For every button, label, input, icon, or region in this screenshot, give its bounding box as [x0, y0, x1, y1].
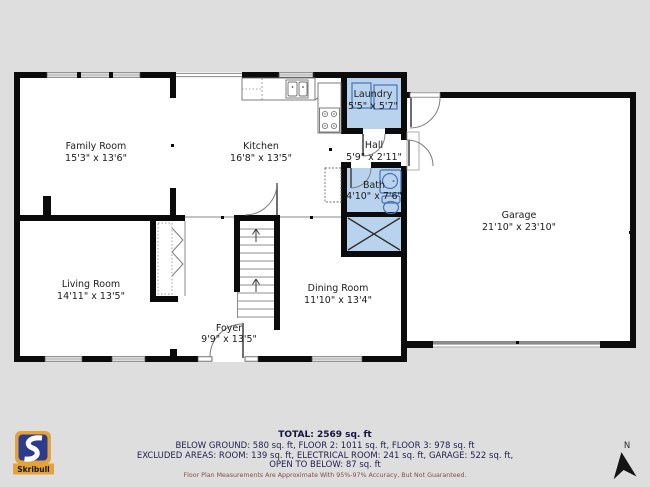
svg-text:5'5" x 5'7": 5'5" x 5'7" [348, 101, 398, 112]
svg-text:Living Room: Living Room [62, 279, 120, 290]
kitchen-sink-icon [286, 80, 308, 98]
pantry-cabinet [325, 168, 341, 202]
svg-text:16'8" x 13'5": 16'8" x 13'5" [230, 153, 292, 164]
total-area-text: TOTAL: 2569 sq. ft [278, 430, 372, 440]
open-to-below-text: OPEN TO BELOW: 87 sq. ft [269, 460, 381, 470]
disclaimer-text: Floor Plan Measurements Are Approximate … [184, 472, 467, 479]
svg-text:Bath: Bath [363, 180, 385, 191]
svg-text:9'9" x 13'5": 9'9" x 13'5" [201, 334, 257, 345]
svg-text:Family Room: Family Room [66, 141, 127, 152]
floor-plan-image: Family Room 15'3" x 13'6" Kitchen 16'8" … [0, 0, 650, 487]
svg-text:4'10" x 7'6": 4'10" x 7'6" [346, 191, 402, 202]
svg-text:5'9" x 2'11": 5'9" x 2'11" [346, 152, 402, 163]
room-label-family-room: Family Room 15'3" x 13'6" [65, 141, 127, 164]
svg-text:21'10" x 23'10": 21'10" x 23'10" [482, 222, 556, 233]
svg-text:Laundry: Laundry [354, 89, 393, 100]
stove-icon [320, 108, 340, 132]
room-label-dining-room: Dining Room 11'10" x 13'4" [304, 283, 372, 306]
logo-brand-text: Skribull [17, 465, 50, 474]
logo: Skribull [13, 431, 54, 475]
compass-n-label: N [624, 441, 630, 451]
svg-text:Dining Room: Dining Room [308, 283, 369, 294]
svg-text:Hall: Hall [365, 140, 383, 151]
floor-plan-page: Family Room 15'3" x 13'6" Kitchen 16'8" … [0, 0, 650, 487]
floors-area-text: BELOW GROUND: 580 sq. ft, FLOOR 2: 1011 … [175, 441, 475, 451]
room-label-living-room: Living Room 14'11" x 13'5" [57, 279, 125, 302]
svg-text:Foyer: Foyer [216, 323, 242, 334]
svg-text:Kitchen: Kitchen [243, 141, 279, 152]
svg-text:Garage: Garage [502, 210, 537, 221]
room-label-laundry: Laundry 5'5" x 5'7" [348, 89, 398, 112]
svg-text:14'11" x 13'5": 14'11" x 13'5" [57, 291, 125, 302]
svg-text:11'10" x 13'4": 11'10" x 13'4" [304, 295, 372, 306]
svg-text:15'3" x 13'6": 15'3" x 13'6" [65, 153, 127, 164]
